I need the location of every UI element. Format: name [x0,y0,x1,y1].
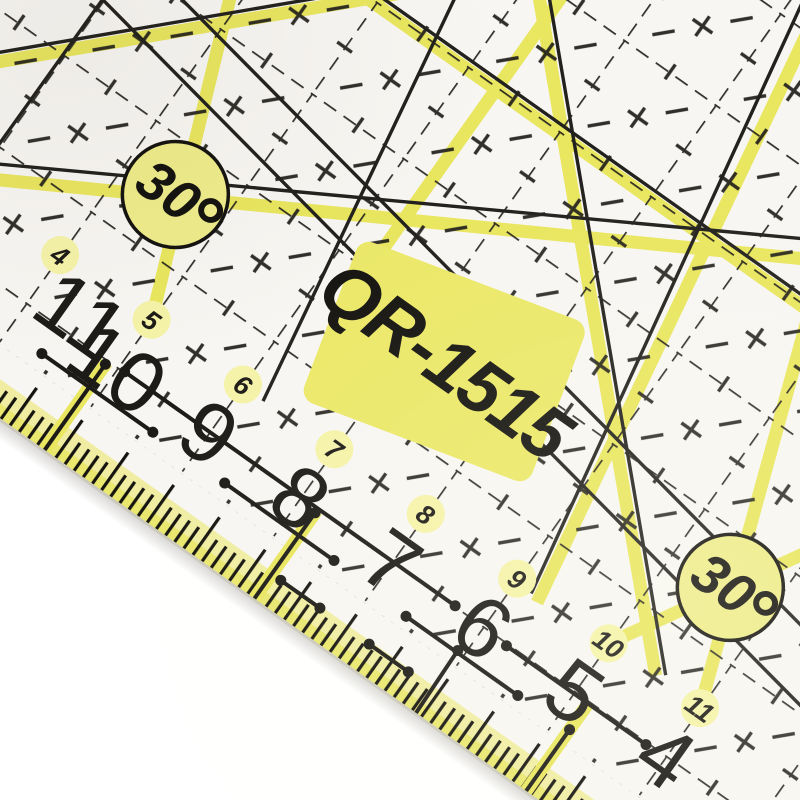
quilting-ruler: 11 10 9 8 7 6 5 4 4 5 [0,0,800,800]
product-photo: 11 10 9 8 7 6 5 4 4 5 [0,0,800,800]
quilting-ruler-photo: 11 10 9 8 7 6 5 4 4 5 [0,0,800,800]
